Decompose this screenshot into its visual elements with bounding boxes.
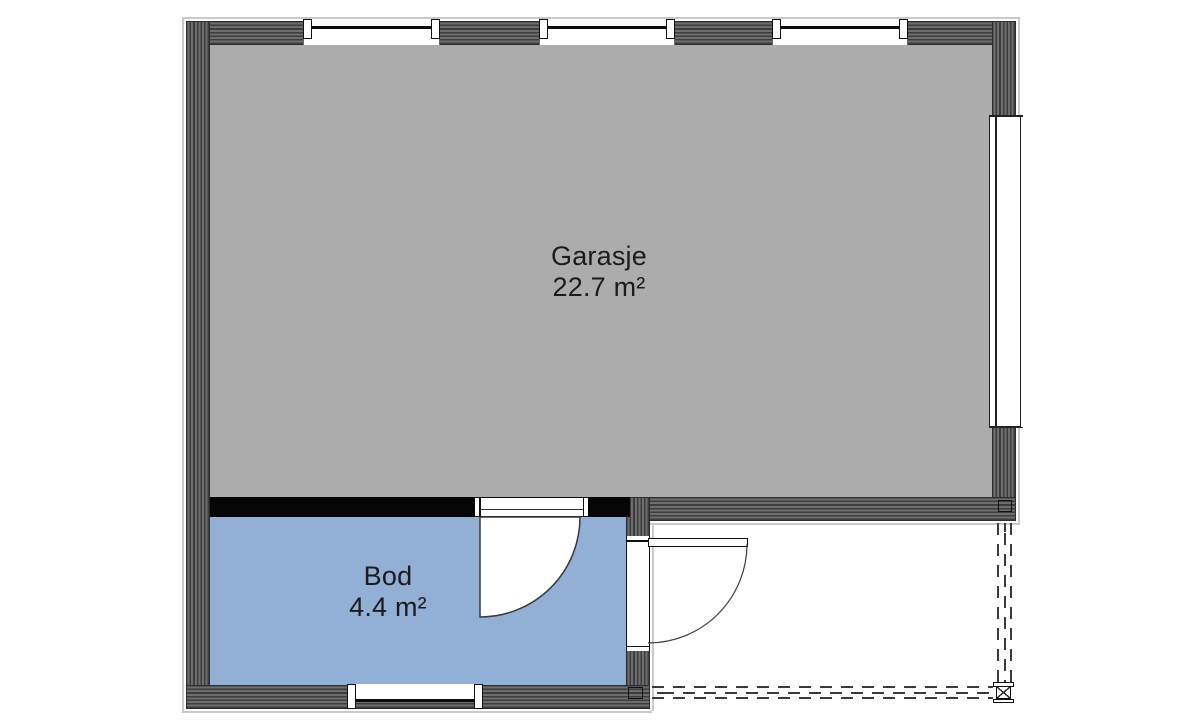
outer-outline-garage-south bbox=[650, 523, 1020, 525]
window-glass-line bbox=[547, 26, 667, 29]
top-window-1-icon bbox=[303, 19, 440, 45]
wall-post-marker bbox=[628, 687, 643, 699]
wall-garage-south bbox=[626, 497, 1016, 521]
roof-overhang-outline bbox=[1004, 523, 1006, 683]
window-tick bbox=[989, 427, 1023, 429]
bod-interior-door-swing-icon bbox=[475, 517, 590, 627]
wall-post-marker bbox=[998, 500, 1012, 512]
roof-overhang-outline bbox=[997, 523, 999, 683]
wall-left bbox=[186, 21, 210, 709]
room-label-bod: Bod 4.4 m² bbox=[288, 561, 488, 623]
window-pane bbox=[989, 116, 1021, 427]
support-post-icon bbox=[993, 682, 1014, 703]
door-jamb bbox=[583, 498, 585, 516]
outer-outline-bottom bbox=[182, 711, 652, 713]
roof-overhang-outline bbox=[1010, 523, 1012, 683]
floor-plan: Garasje 22.7 m² Bod 4.4 m² bbox=[0, 0, 1200, 720]
window-end-post bbox=[303, 19, 312, 39]
window-end-post bbox=[666, 19, 675, 39]
window-opening bbox=[772, 21, 908, 45]
window-glass-line bbox=[356, 699, 474, 702]
door-sill-line bbox=[480, 509, 583, 510]
window-glass-line bbox=[311, 26, 432, 29]
window-end-post bbox=[772, 19, 781, 39]
window-opening bbox=[539, 21, 675, 45]
bod-interior-door-frame bbox=[475, 497, 588, 517]
window-mullion-line bbox=[995, 116, 997, 427]
window-end-post bbox=[539, 19, 548, 39]
top-window-3-icon bbox=[772, 19, 908, 45]
door-swing-arc bbox=[648, 544, 747, 643]
room-label-garasje: Garasje 22.7 m² bbox=[499, 241, 699, 303]
window-end-post bbox=[474, 684, 483, 709]
bottom-window-icon bbox=[347, 684, 483, 709]
roof-overhang-outline bbox=[652, 686, 993, 688]
top-window-2-icon bbox=[539, 19, 675, 45]
window-end-post bbox=[431, 19, 440, 39]
right-wall-window-icon bbox=[989, 115, 1023, 428]
window-end-post bbox=[899, 19, 908, 39]
window-glass-line bbox=[780, 26, 900, 29]
post-cap bbox=[993, 699, 1014, 704]
room-area: 4.4 m² bbox=[288, 592, 488, 623]
room-area: 22.7 m² bbox=[499, 272, 699, 303]
room-name: Bod bbox=[288, 561, 488, 592]
door-swing-arc bbox=[480, 517, 580, 617]
roof-overhang-outline bbox=[652, 692, 993, 694]
window-opening bbox=[303, 21, 440, 45]
room-name: Garasje bbox=[499, 241, 699, 272]
window-end-post bbox=[347, 684, 356, 709]
outer-outline-left bbox=[182, 17, 184, 713]
roof-overhang-outline bbox=[652, 697, 993, 699]
bod-exterior-door-swing-icon bbox=[646, 540, 752, 650]
post-core bbox=[996, 686, 1011, 699]
door-jamb bbox=[479, 498, 481, 516]
